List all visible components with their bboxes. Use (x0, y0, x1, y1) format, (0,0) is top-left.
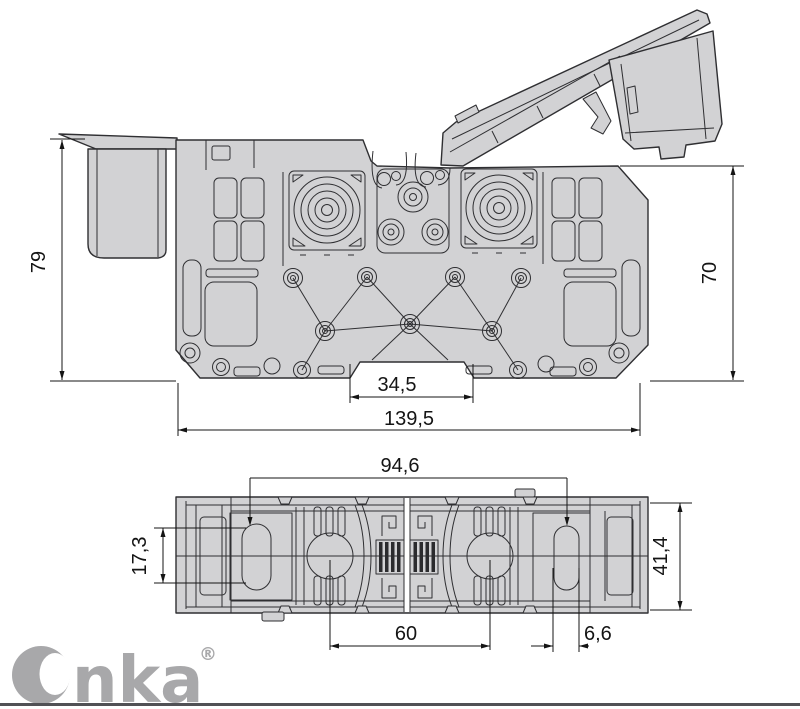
dim-label-60: 60 (395, 623, 417, 645)
plan-view-drawing (176, 489, 648, 621)
logo-wordmark: nka (72, 644, 203, 709)
side-bracket (59, 134, 177, 258)
onka-logo: nka ® (12, 644, 217, 709)
dim-label-79: 79 (28, 251, 50, 273)
dim-label-94-6: 94,6 (381, 455, 420, 477)
side-body-outline (176, 140, 648, 378)
dim-label-34-5: 34,5 (378, 374, 417, 396)
dim-label-6-6: 6,6 (584, 623, 612, 645)
cover-latch-hook (583, 92, 611, 134)
drawing-svg: 79 70 34,5 139,5 94,6 41,4 17,3 60 6,6 (0, 0, 800, 709)
footer-rule (0, 703, 800, 706)
side-view-drawing (59, 10, 722, 379)
dim-label-17-3: 17,3 (129, 537, 151, 576)
dimension-41-4: 41,4 (650, 503, 692, 610)
registered-trademark-icon: ® (199, 644, 217, 665)
technical-drawing-page: 79 70 34,5 139,5 94,6 41,4 17,3 60 6,6 (0, 0, 800, 709)
plan-body-outline (176, 497, 648, 613)
dimension-34-5: 34,5 (350, 364, 473, 403)
dim-label-70: 70 (699, 262, 721, 284)
dim-label-41-4: 41,4 (650, 537, 672, 576)
dim-label-139-5: 139,5 (384, 408, 434, 430)
open-cover (441, 10, 722, 166)
